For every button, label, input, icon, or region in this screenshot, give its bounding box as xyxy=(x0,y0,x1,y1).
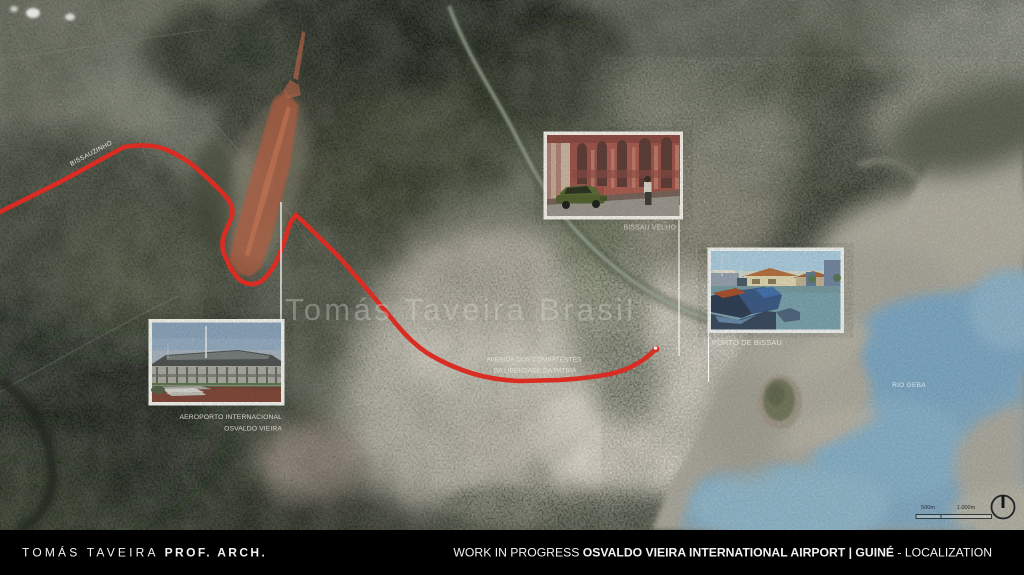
svg-text:OSVALDO VIEIRA: OSVALDO VIEIRA xyxy=(224,426,282,433)
svg-text:1.000m: 1.000m xyxy=(957,505,976,511)
svg-text:500m: 500m xyxy=(921,505,935,511)
svg-text:Tomás Taveira Brasil: Tomás Taveira Brasil xyxy=(285,292,636,327)
svg-text:PORTO DE BISSAU: PORTO DE BISSAU xyxy=(712,338,782,347)
svg-text:TOMÁS TAVEIRA PROF. ARCH.: TOMÁS TAVEIRA PROF. ARCH. xyxy=(22,545,267,560)
svg-text:AEROPORTO INTERNACIONAL: AEROPORTO INTERNACIONAL xyxy=(179,414,282,421)
svg-text:WORK IN PROGRESS OSVALDO VIEIR: WORK IN PROGRESS OSVALDO VIEIRA INTERNAT… xyxy=(453,545,992,560)
svg-text:AVENIDA DOS COMBATENTES: AVENIDA DOS COMBATENTES xyxy=(486,357,581,364)
svg-text:RIO GEBA: RIO GEBA xyxy=(892,382,926,389)
svg-text:DA LIBERDADE DA PATRIA: DA LIBERDADE DA PATRIA xyxy=(494,368,578,375)
svg-text:BISSAU VELHO: BISSAU VELHO xyxy=(623,225,676,232)
